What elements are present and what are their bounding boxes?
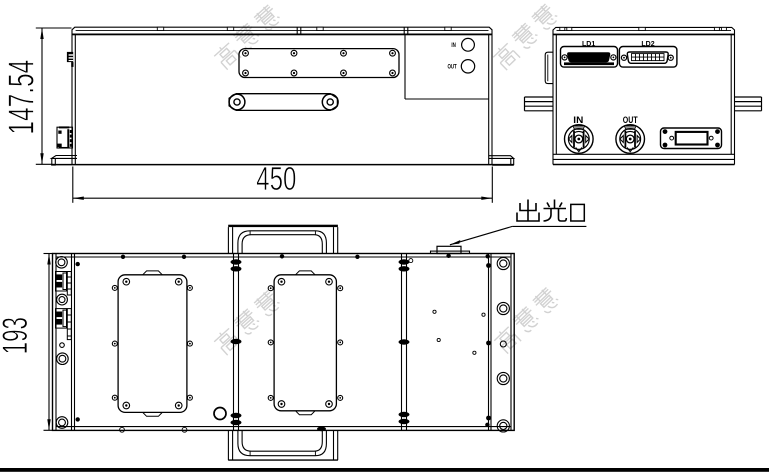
svg-text:450: 450 — [256, 161, 296, 198]
svg-text:193: 193 — [0, 317, 35, 354]
svg-text:LD1: LD1 — [582, 41, 595, 48]
svg-text:IN: IN — [573, 115, 583, 126]
svg-text:LD2: LD2 — [641, 41, 654, 48]
svg-text:OUT: OUT — [623, 114, 638, 125]
svg-text:IN: IN — [451, 42, 455, 49]
svg-text:OUT: OUT — [447, 64, 457, 71]
svg-text:147.54: 147.54 — [1, 60, 42, 135]
